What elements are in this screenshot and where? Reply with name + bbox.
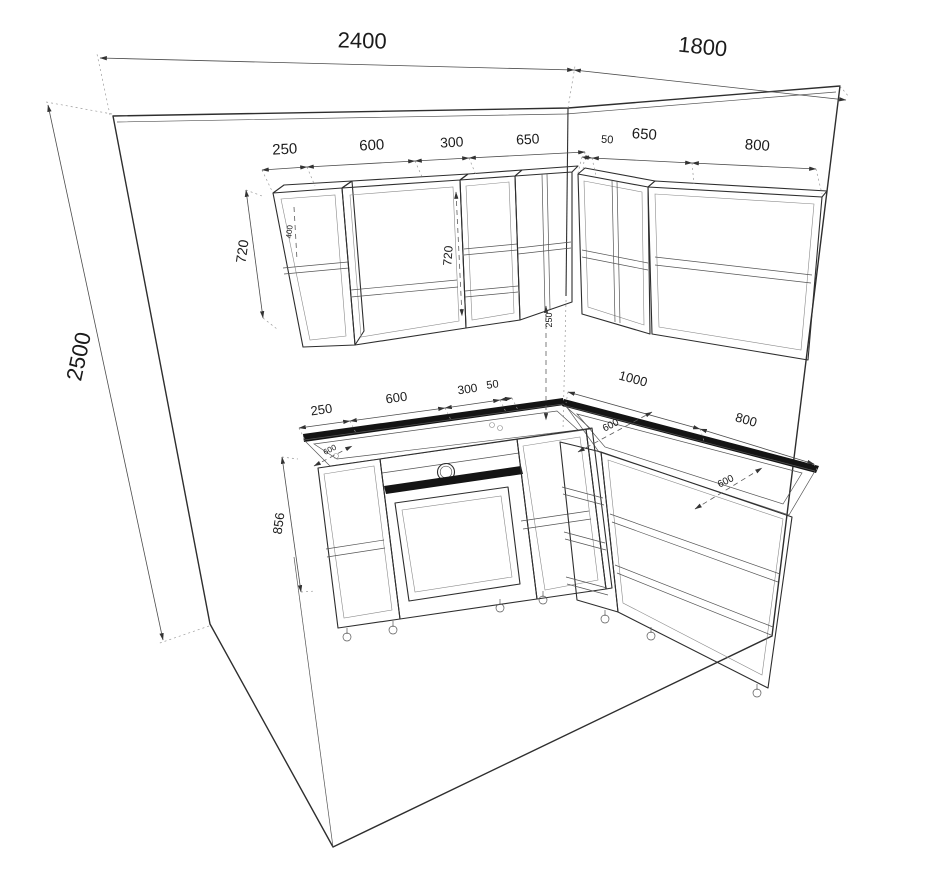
dim-line-bc-300 — [445, 400, 500, 408]
wall-cabinet-650-corner-divider — [542, 174, 550, 311]
room-outline — [113, 86, 840, 847]
wall-cabinet-650-corner-shelf — [518, 242, 571, 254]
dimension-labels: 2400 1800 2500 250 600 300 650 50 650 80… — [61, 27, 770, 535]
dim-label-wc-right-50: 50 — [601, 134, 614, 147]
dim-line-2400 — [100, 58, 574, 70]
dim-line-wc-50 — [582, 157, 592, 158]
dim-label-bc-right-1000: 1000 — [617, 368, 649, 390]
wall-cabinet-650-right — [578, 168, 655, 334]
wall-cabinet-300 — [460, 170, 522, 328]
dim-line-bc-250 — [299, 421, 350, 428]
dim-label-wc-left-600: 600 — [359, 136, 385, 154]
kitchen-technical-drawing: 2400 1800 2500 250 600 300 650 50 650 80… — [0, 0, 929, 880]
dim-line-1800 — [574, 70, 846, 100]
dim-label-room-width-left: 2400 — [337, 27, 387, 53]
room-corner-construction-line — [563, 300, 566, 430]
oven-cavity-inner — [402, 496, 512, 592]
kitchen-drawing-svg: 2400 1800 2500 250 600 300 650 50 650 80… — [0, 0, 929, 880]
wall-cabinet-650-right-shelf — [582, 250, 648, 270]
dim-label-wc-shelf-400: 400 — [284, 224, 294, 239]
cabinet-feet — [343, 591, 761, 697]
dim-label-room-width-right: 1800 — [677, 32, 728, 62]
wall-cabinet-600-bottom-shelf — [351, 280, 458, 297]
dim-label-wc-inner-720: 720 — [440, 245, 455, 266]
wall-cabinet-650-right-stile — [612, 180, 620, 323]
base-cabinet-250-shelf — [326, 540, 385, 557]
wall-cabinet-800-shelf — [655, 257, 812, 283]
wall-cabinet-250-shelf — [283, 262, 349, 274]
counter-fitting-mark — [490, 423, 495, 428]
wall-cabinet-300-shelves — [464, 244, 518, 297]
wall-cabinet-650-right-frame — [584, 181, 644, 325]
base-cabinet-800-shelves — [610, 514, 780, 635]
dim-line-bc-50 — [500, 398, 512, 400]
dim-label-room-height: 2500 — [61, 330, 96, 383]
base-cabinet-300-frame — [523, 437, 598, 590]
dim-line-wc-600 — [307, 161, 415, 167]
oven-handle-band — [384, 466, 523, 494]
base-cabinet-300-shelf — [521, 511, 591, 529]
room-corner-edge — [566, 108, 568, 296]
dim-label-wc-right-800: 800 — [744, 136, 770, 155]
dim-label-bc-left-600: 600 — [385, 389, 409, 407]
counter-fitting-mark — [334, 454, 339, 459]
dim-line-wc-250 — [262, 167, 307, 170]
dim-line-wc-650r — [592, 158, 692, 163]
room-wall-top-inner-edge — [117, 92, 836, 122]
dim-label-bc-height-856: 856 — [270, 512, 288, 536]
dim-label-bc-right-800: 800 — [734, 409, 759, 429]
dim-label-bc-left-250: 250 — [310, 401, 334, 419]
wall-cabinet-800-frame — [655, 194, 814, 350]
dim-label-wc-left-250: 250 — [272, 140, 298, 158]
dim-label-depth-600-left: 600 — [322, 442, 338, 456]
dim-label-bc-left-50: 50 — [486, 378, 500, 392]
dim-line-inner-400 — [294, 207, 297, 260]
floor-corner-line — [294, 557, 333, 847]
dim-line-wc-800 — [692, 163, 816, 169]
wall-cabinet-250 — [273, 181, 364, 347]
base-cabinet-250 — [318, 459, 400, 628]
countertop-back-edge-left — [303, 398, 564, 442]
wall-cabinet-650-corner — [515, 166, 578, 320]
dim-label-wc-height-720: 720 — [233, 238, 252, 264]
dim-label-backsplash-250: 250 — [544, 312, 554, 327]
room-walls — [113, 86, 840, 847]
dim-label-wc-left-300: 300 — [440, 133, 464, 150]
dim-label-wc-left-650: 650 — [516, 130, 540, 147]
dim-label-bc-left-300: 300 — [457, 381, 479, 398]
wall-cabinet-800 — [648, 181, 827, 360]
base-cabinet-800 — [601, 452, 792, 688]
oven-knob-inner — [440, 466, 452, 478]
dim-line-wc-300 — [415, 158, 469, 161]
dim-label-wc-right-650: 650 — [631, 125, 657, 144]
counter-fitting-mark — [498, 426, 503, 431]
wall-cabinets-left-row — [273, 166, 578, 347]
wall-cabinets-right-row — [578, 168, 827, 360]
